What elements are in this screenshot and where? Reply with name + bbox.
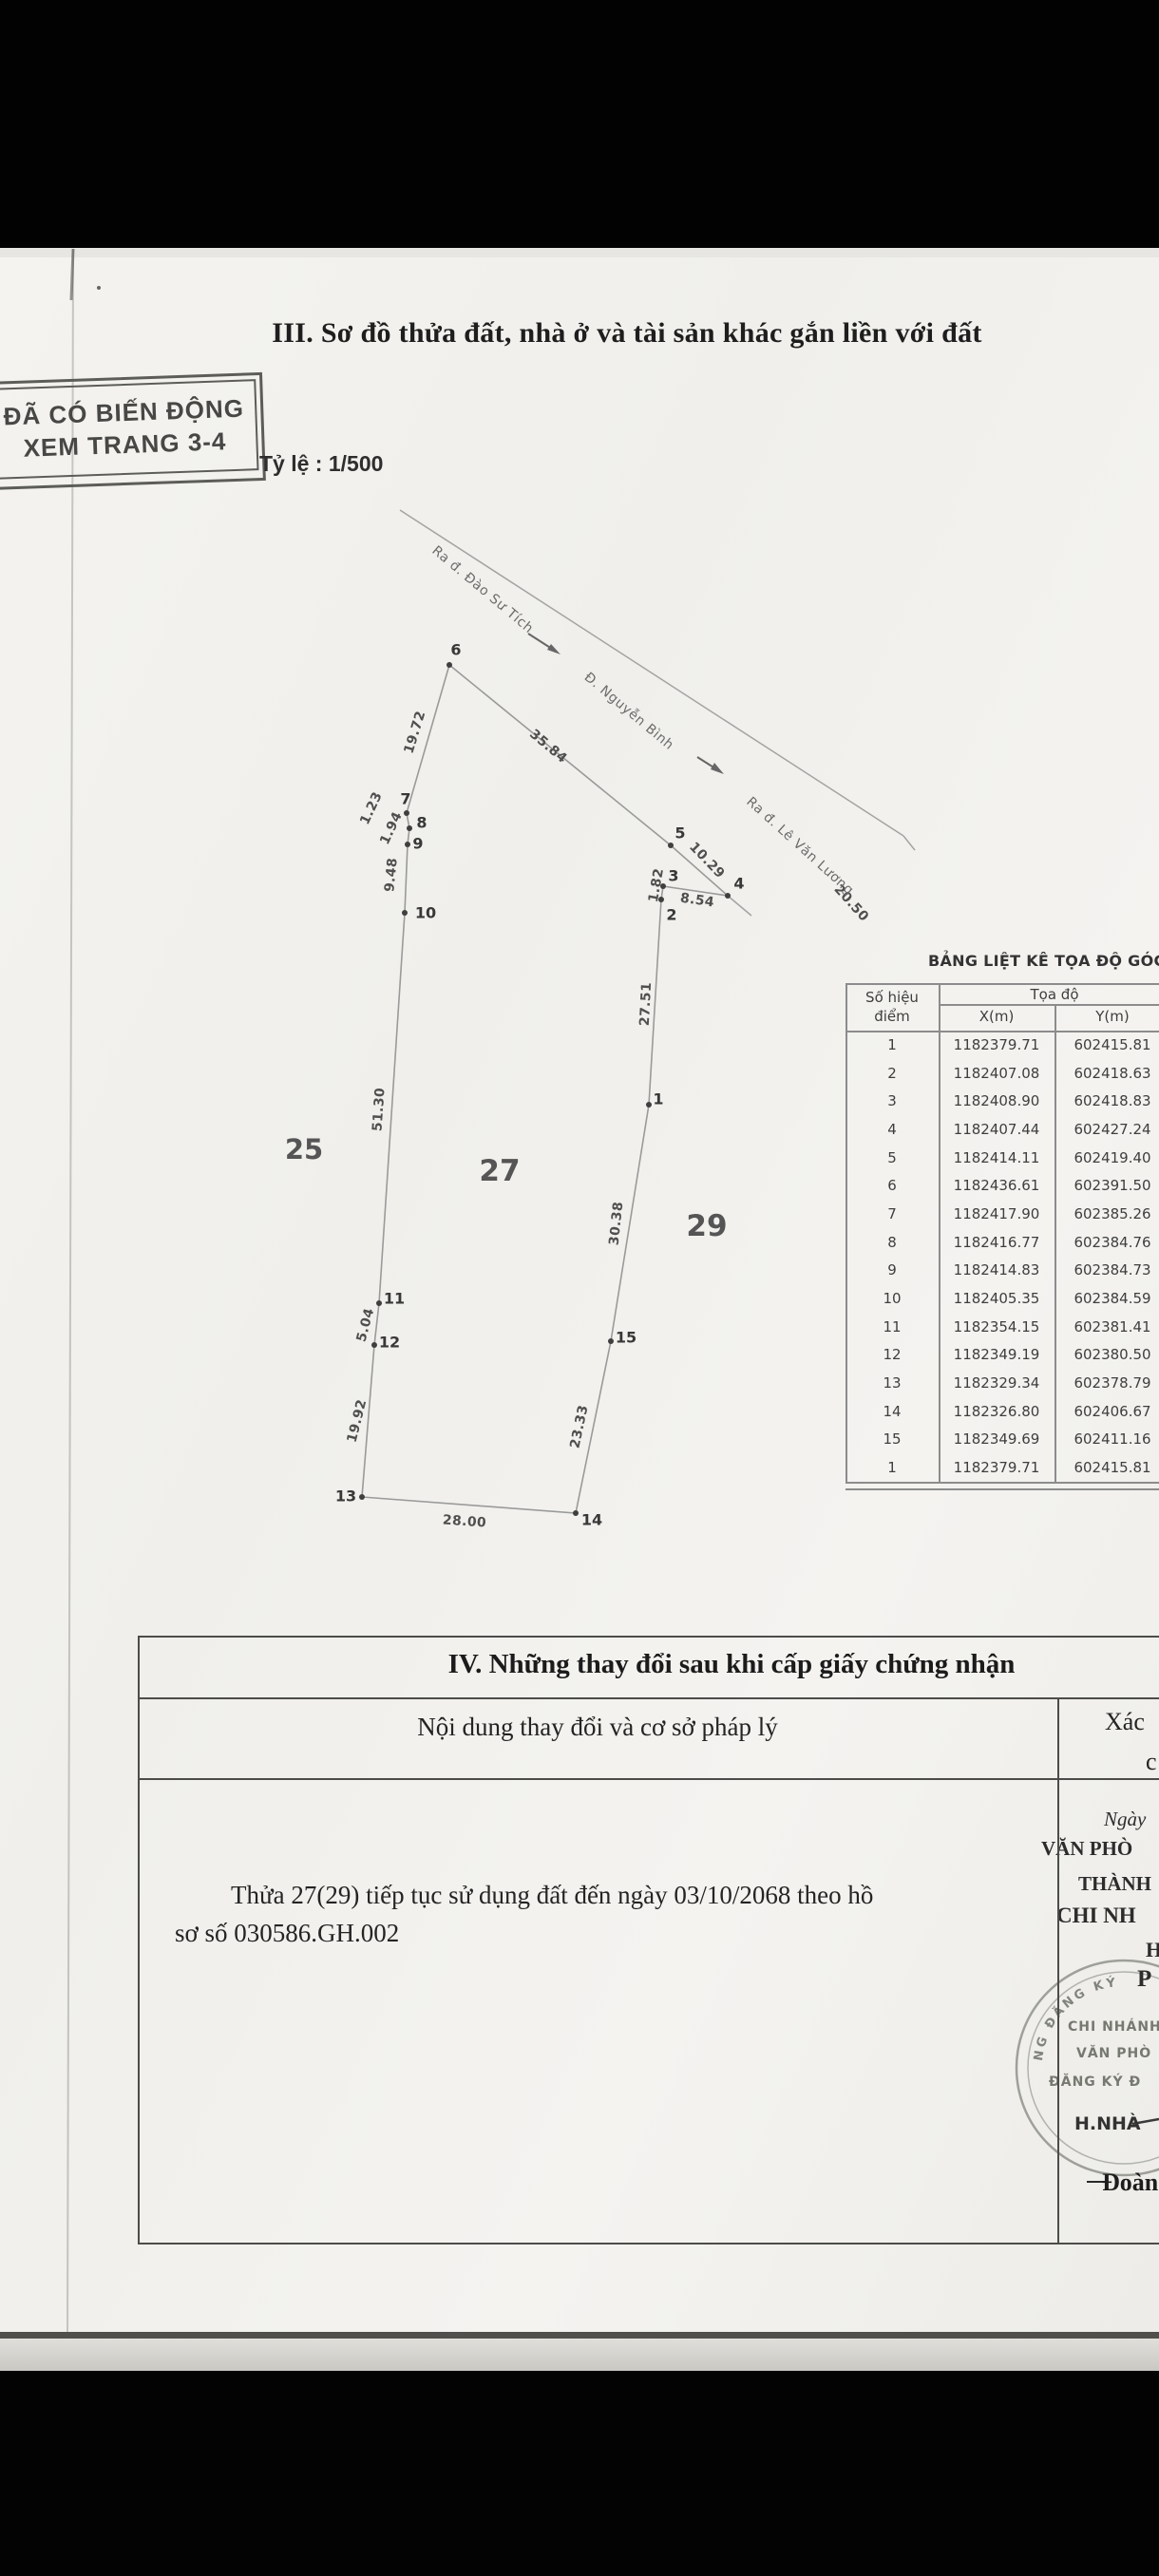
coord-table-row: 11182379.71602415.81 bbox=[845, 1453, 1159, 1482]
y-coordinate-cell: 602384.76 bbox=[1054, 1234, 1159, 1251]
coord-y-header: Y(m) bbox=[1054, 1008, 1159, 1025]
x-coordinate-cell: 1182405.35 bbox=[939, 1290, 1054, 1307]
point-id-cell: 13 bbox=[845, 1374, 939, 1392]
scanned-certificate-page: NG ĐĂNG KÝ III. Sơ đồ thửa đất, nhà ở và… bbox=[0, 0, 1159, 2576]
point-id-cell: 5 bbox=[845, 1149, 939, 1166]
stamp-line-2: XEM TRANG 3-4 bbox=[23, 426, 227, 464]
page-bottom-shadow-strip bbox=[0, 2339, 1159, 2371]
point-id-cell: 14 bbox=[845, 1403, 939, 1420]
coord-table-row: 41182407.44602427.24 bbox=[845, 1115, 1159, 1144]
section-iv-title: IV. Những thay đổi sau khi cấp giấy chứn… bbox=[138, 1649, 1159, 1680]
coord-table-row: 61182436.61602391.50 bbox=[845, 1171, 1159, 1200]
x-coordinate-cell: 1182414.11 bbox=[939, 1149, 1054, 1166]
coord-table-row: 141182326.80602406.67 bbox=[845, 1397, 1159, 1426]
x-coordinate-cell: 1182417.90 bbox=[939, 1205, 1054, 1222]
coord-table-title: BẢNG LIỆT KÊ TỌA ĐỘ GÓC RANH bbox=[928, 952, 1159, 970]
coord-table-row: 111182354.15602381.41 bbox=[845, 1313, 1159, 1341]
y-coordinate-cell: 602411.16 bbox=[1054, 1430, 1159, 1448]
page-bottom-edge-line bbox=[0, 2332, 1159, 2339]
point-id-cell: 8 bbox=[845, 1234, 939, 1251]
y-coordinate-cell: 602381.41 bbox=[1054, 1318, 1159, 1335]
stamp-fragment-hnha: H.NHÀ bbox=[1074, 2113, 1141, 2134]
x-coordinate-cell: 1182408.90 bbox=[939, 1092, 1054, 1109]
scan-black-band-bottom bbox=[0, 2371, 1159, 2576]
scale-label: Tỷ lệ : 1/500 bbox=[259, 451, 383, 477]
y-coordinate-cell: 602419.40 bbox=[1054, 1149, 1159, 1166]
x-coordinate-cell: 1182354.15 bbox=[939, 1318, 1054, 1335]
section-iii-title: III. Sơ đồ thửa đất, nhà ở và tài sản kh… bbox=[142, 317, 1111, 350]
coord-table-row: 151182349.69602411.16 bbox=[845, 1426, 1159, 1454]
section-iv-left-header: Nội dung thay đổi và cơ sở pháp lý bbox=[138, 1713, 1057, 1742]
x-coordinate-cell: 1182416.77 bbox=[939, 1234, 1054, 1251]
point-id-cell: 12 bbox=[845, 1346, 939, 1363]
coord-col1-header-2: điểm bbox=[845, 1008, 939, 1025]
y-coordinate-cell: 602415.81 bbox=[1054, 1459, 1159, 1476]
page-top-edge bbox=[0, 248, 1159, 257]
section-iv-right-header-fragment: Xác bbox=[1105, 1708, 1145, 1736]
x-coordinate-cell: 1182326.80 bbox=[939, 1403, 1054, 1420]
point-id-cell: 2 bbox=[845, 1065, 939, 1082]
point-id-cell: 3 bbox=[845, 1092, 939, 1109]
y-coordinate-cell: 602427.24 bbox=[1054, 1121, 1159, 1138]
coord-table-row: 11182379.71602415.81 bbox=[845, 1031, 1159, 1059]
coord-table-row: 81182416.77602384.76 bbox=[845, 1228, 1159, 1257]
y-coordinate-cell: 602380.50 bbox=[1054, 1346, 1159, 1363]
x-coordinate-cell: 1182414.83 bbox=[939, 1261, 1054, 1279]
point-id-cell: 15 bbox=[845, 1430, 939, 1448]
change-entry-line-2: sơ số 030586.GH.002 bbox=[175, 1919, 399, 1948]
x-coordinate-cell: 1182349.19 bbox=[939, 1346, 1054, 1363]
point-id-cell: 10 bbox=[845, 1290, 939, 1307]
y-coordinate-cell: 602418.83 bbox=[1054, 1092, 1159, 1109]
change-entry-line-1: Thửa 27(29) tiếp tục sử dụng đất đến ngà… bbox=[231, 1881, 873, 1910]
signature-name-fragment: Đoàn bbox=[1102, 2169, 1158, 2197]
coord-table-row: 131182329.34602378.79 bbox=[845, 1369, 1159, 1397]
coord-x-header: X(m) bbox=[939, 1008, 1054, 1025]
point-id-cell: 11 bbox=[845, 1318, 939, 1335]
point-id-cell: 4 bbox=[845, 1121, 939, 1138]
x-coordinate-cell: 1182436.61 bbox=[939, 1177, 1054, 1194]
y-coordinate-cell: 602385.26 bbox=[1054, 1205, 1159, 1222]
point-id-cell: 9 bbox=[845, 1261, 939, 1279]
x-coordinate-cell: 1182329.34 bbox=[939, 1374, 1054, 1392]
x-coordinate-cell: 1182407.08 bbox=[939, 1065, 1054, 1082]
coord-table-rows: 11182379.71602415.8121182407.08602418.63… bbox=[845, 1031, 1159, 1482]
coord-group-header: Tọa độ bbox=[939, 986, 1159, 1003]
y-coordinate-cell: 602418.63 bbox=[1054, 1065, 1159, 1082]
scan-black-band-top bbox=[0, 0, 1159, 248]
point-id-cell: 7 bbox=[845, 1205, 939, 1222]
x-coordinate-cell: 1182407.44 bbox=[939, 1121, 1054, 1138]
coord-table-row: 121182349.19602380.50 bbox=[845, 1341, 1159, 1370]
coordinate-table: Số hiệu điểm Tọa độ X(m) Y(m) 11182379.7… bbox=[845, 983, 1159, 1488]
y-coordinate-cell: 602415.81 bbox=[1054, 1036, 1159, 1053]
y-coordinate-cell: 602384.59 bbox=[1054, 1290, 1159, 1307]
change-notice-stamp: ĐÃ CÓ BIẾN ĐỘNG XEM TRANG 3-4 bbox=[0, 372, 266, 490]
x-coordinate-cell: 1182349.69 bbox=[939, 1430, 1054, 1448]
coord-table-row: 51182414.11602419.40 bbox=[845, 1144, 1159, 1172]
coord-table-row: 31182408.90602418.83 bbox=[845, 1087, 1159, 1115]
coord-col1-header: Số hiệu bbox=[845, 989, 939, 1006]
point-id-cell: 6 bbox=[845, 1177, 939, 1194]
coord-table-row: 91182414.83602384.73 bbox=[845, 1257, 1159, 1285]
coord-table-row: 101182405.35602384.59 bbox=[845, 1284, 1159, 1313]
point-id-cell: 1 bbox=[845, 1459, 939, 1476]
x-coordinate-cell: 1182379.71 bbox=[939, 1459, 1054, 1476]
section-iv-right-header-fragment-2: c bbox=[1146, 1748, 1157, 1776]
coord-table-row: 21182407.08602418.63 bbox=[845, 1059, 1159, 1088]
x-coordinate-cell: 1182379.71 bbox=[939, 1036, 1054, 1053]
coord-table-row: 71182417.90602385.26 bbox=[845, 1200, 1159, 1228]
y-coordinate-cell: 602384.73 bbox=[1054, 1261, 1159, 1279]
point-id-cell: 1 bbox=[845, 1036, 939, 1053]
y-coordinate-cell: 602406.67 bbox=[1054, 1403, 1159, 1420]
y-coordinate-cell: 602378.79 bbox=[1054, 1374, 1159, 1392]
y-coordinate-cell: 602391.50 bbox=[1054, 1177, 1159, 1194]
